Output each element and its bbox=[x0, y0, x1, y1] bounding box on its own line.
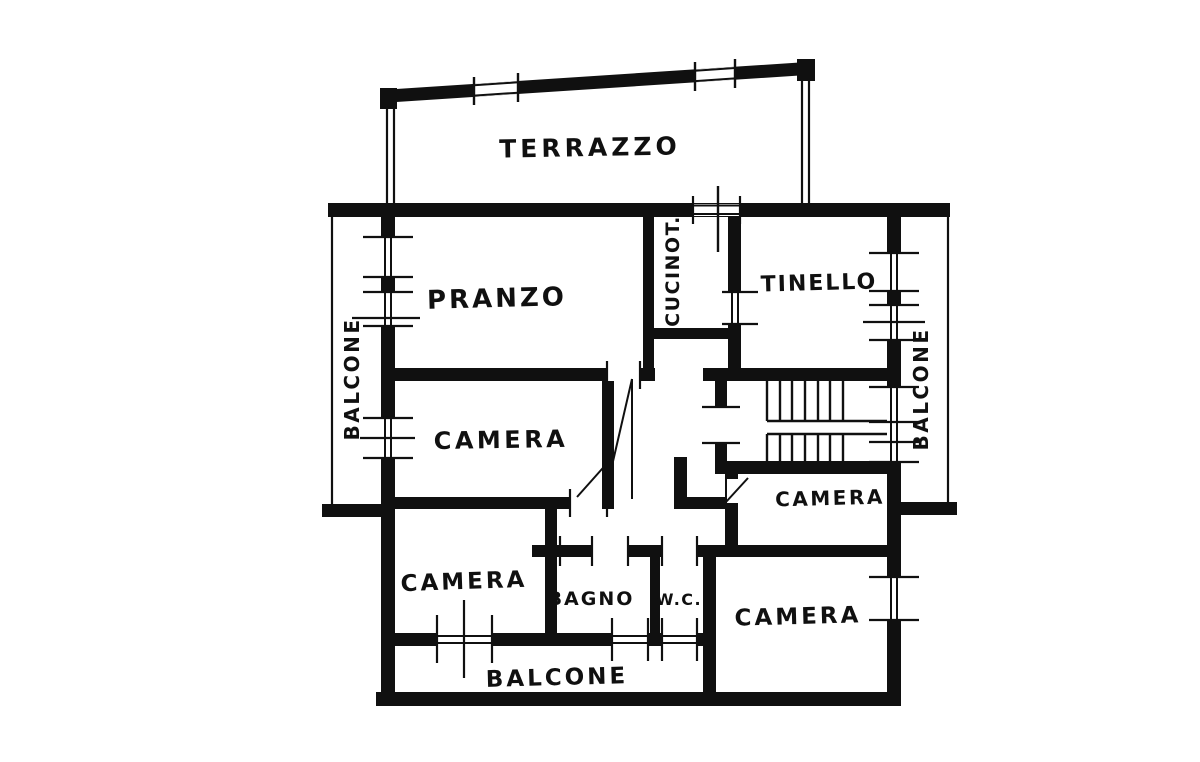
terrace-railing-segment bbox=[695, 59, 735, 91]
floor-plan-page: TERRAZZO PRANZO CUCINOT. TINELLO BALCONE… bbox=[0, 0, 1200, 762]
room-label-pranzo: PRANZO bbox=[427, 282, 568, 316]
staircase bbox=[767, 381, 887, 461]
cucinotto-left-wall bbox=[643, 216, 654, 375]
wc-window bbox=[662, 618, 697, 661]
tinello-left-wall-upper bbox=[728, 216, 741, 292]
terrace-left-wall-cap bbox=[380, 88, 397, 109]
room-label-balcone-bottom: BALCONE bbox=[485, 663, 628, 693]
hall-stub-wall bbox=[674, 457, 687, 509]
pranzo-bottom-wall bbox=[381, 368, 607, 381]
terrace-right-wall-cap bbox=[797, 59, 815, 81]
room-label-camera-top: CAMERA bbox=[433, 425, 568, 455]
stair-left-wall-lower bbox=[715, 443, 727, 461]
cucinotto-bottom-wall bbox=[645, 328, 730, 339]
camera-bottom-right-left-wall bbox=[703, 545, 716, 706]
terrace-railing-segment bbox=[474, 73, 518, 105]
corridor-bottom-wall-b bbox=[628, 545, 662, 557]
terrace bbox=[380, 59, 815, 203]
bagno-window bbox=[612, 618, 648, 661]
room-label-terrazzo: TERRAZZO bbox=[499, 131, 681, 163]
bottom-wall bbox=[376, 692, 899, 706]
room-label-camera-bottom-left: CAMERA bbox=[400, 567, 528, 597]
right-balcony-bottom-wall bbox=[887, 502, 957, 515]
room-label-cucinotto: CUCINOT. bbox=[662, 215, 684, 327]
service-row-bottom-wall-c bbox=[648, 633, 662, 646]
window bbox=[363, 237, 413, 277]
room-label-camera-bottom-right: CAMERA bbox=[734, 602, 861, 631]
service-row-bottom-wall-a bbox=[381, 633, 437, 646]
room-label-tinello: TINELLO bbox=[760, 269, 877, 297]
terrace-parapet-wall bbox=[381, 62, 807, 103]
room-label-bagno: BAGNO bbox=[548, 588, 635, 610]
corridor-top-wall bbox=[381, 497, 570, 509]
room-label-balcone-left: BALCONE bbox=[340, 317, 364, 440]
balcony-door bbox=[437, 600, 492, 678]
room-label-balcone-right: BALCONE bbox=[909, 327, 933, 450]
corridor-bottom-wall-a bbox=[532, 545, 592, 557]
stair-left-wall-upper bbox=[715, 381, 727, 407]
camera-mid-right-left-wall-lower bbox=[725, 503, 738, 557]
camera-bottom-left-right-wall bbox=[545, 505, 557, 645]
window bbox=[869, 577, 919, 620]
door-swing bbox=[726, 478, 748, 502]
room-label-wc: W.C. bbox=[656, 590, 702, 609]
window bbox=[360, 418, 415, 458]
left-balcony-bottom-wall bbox=[322, 504, 382, 517]
top-wall bbox=[328, 203, 950, 217]
tinello-left-wall-lower bbox=[728, 324, 741, 381]
room-label-camera-mid-right: CAMERA bbox=[775, 485, 885, 512]
stair-bottom-wall bbox=[715, 461, 888, 474]
corridor-top-wall-right bbox=[687, 497, 727, 509]
floor-plan-drawing: TERRAZZO PRANZO CUCINOT. TINELLO BALCONE… bbox=[0, 0, 1200, 762]
